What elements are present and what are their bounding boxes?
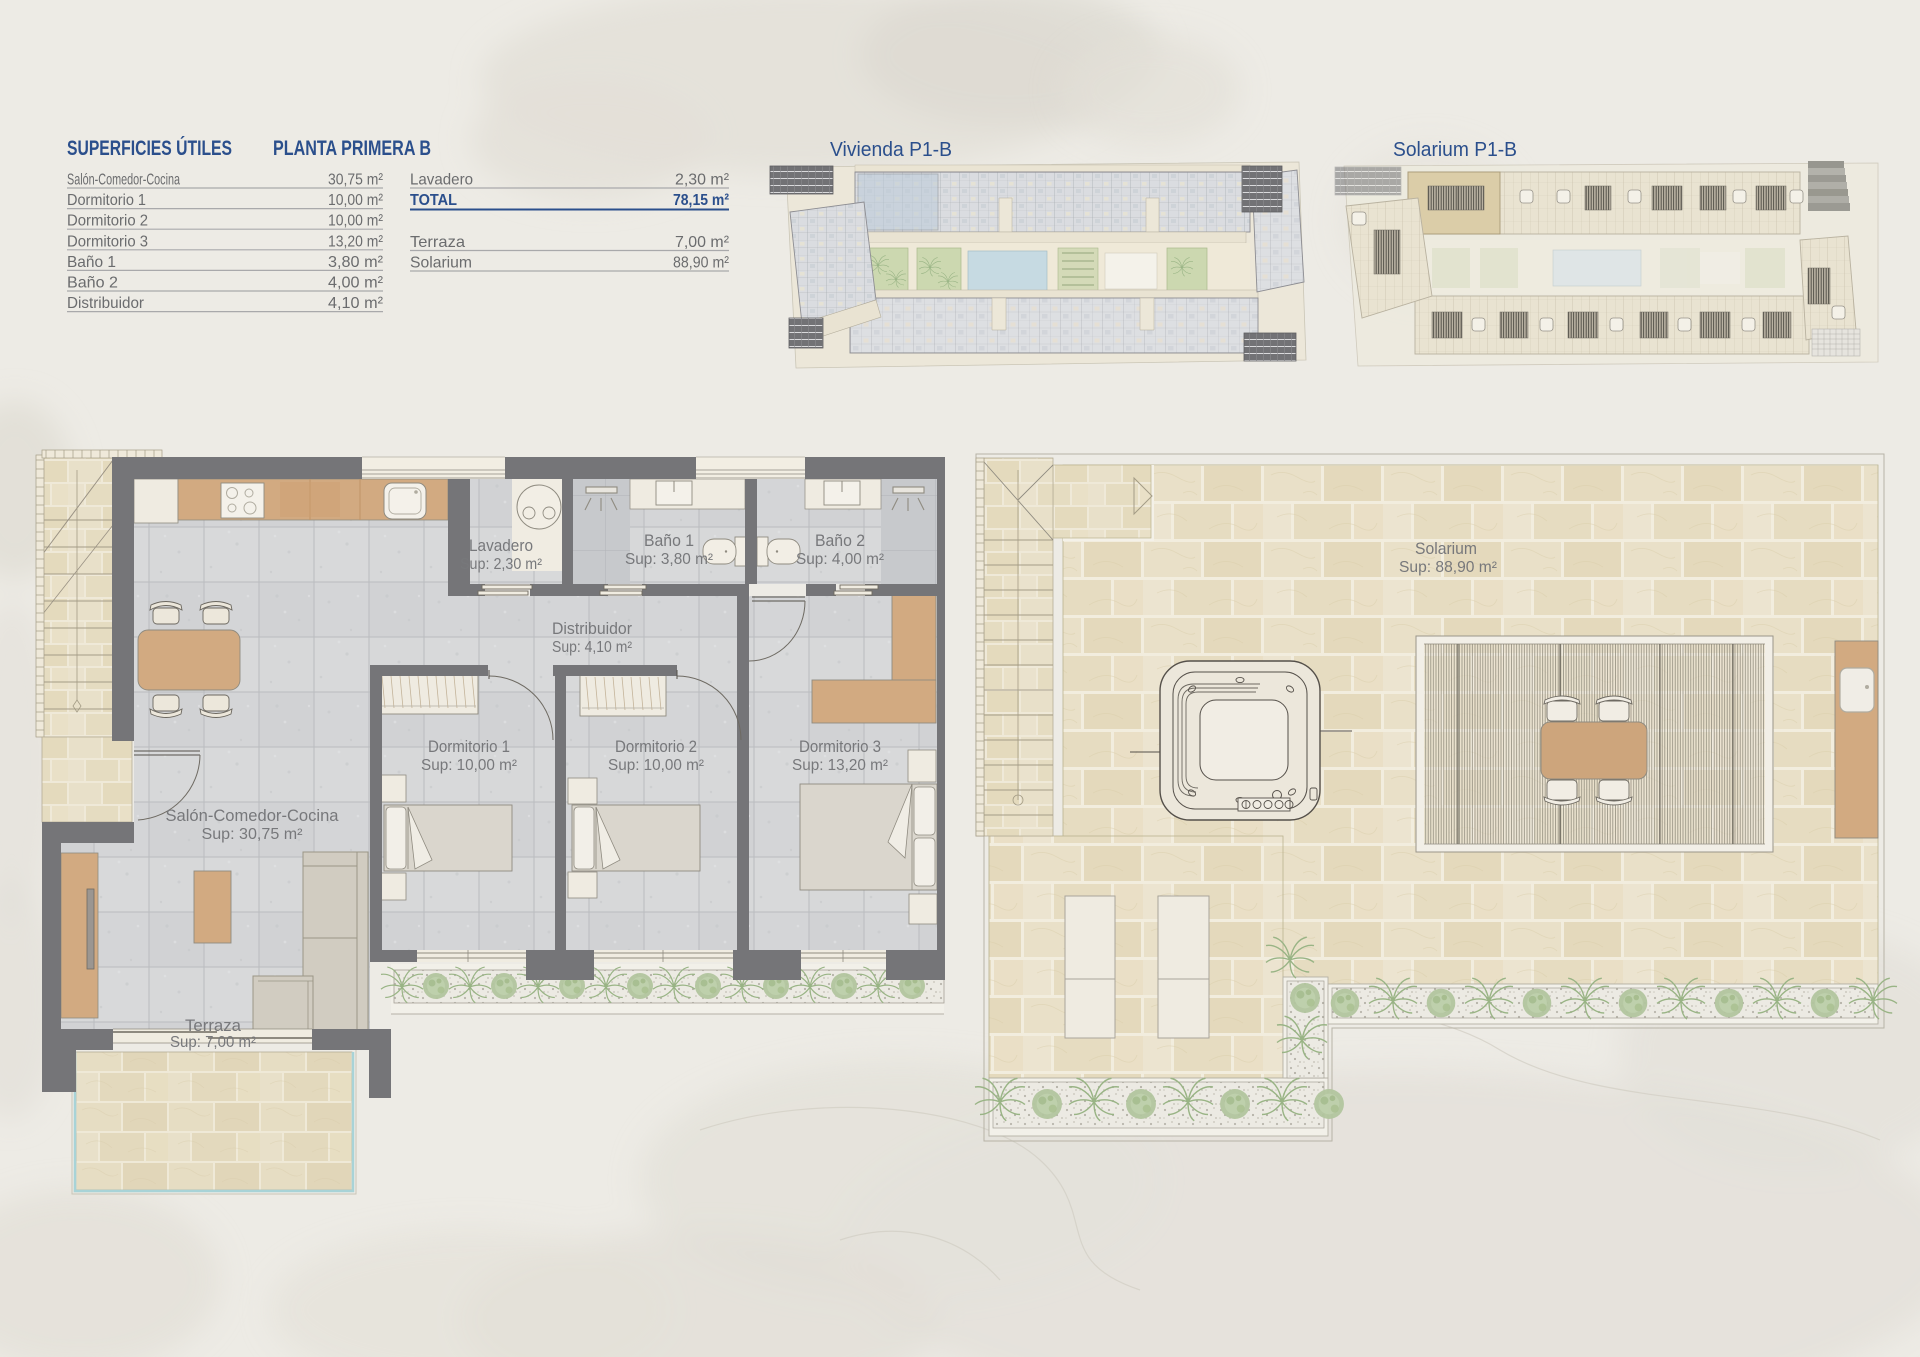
svg-text:10,00 m²: 10,00 m² <box>328 213 384 230</box>
svg-text:Sup: 30,75 m²: Sup: 30,75 m² <box>202 826 303 843</box>
svg-text:Lavadero: Lavadero <box>469 537 533 555</box>
svg-text:Baño 1: Baño 1 <box>67 254 116 271</box>
svg-text:Sup: 13,20 m²: Sup: 13,20 m² <box>792 757 888 774</box>
svg-text:Dormitorio 3: Dormitorio 3 <box>799 738 881 756</box>
svg-text:10,00 m²: 10,00 m² <box>328 192 384 209</box>
svg-text:Dormitorio 3: Dormitorio 3 <box>67 233 148 250</box>
svg-text:Terraza: Terraza <box>185 1017 242 1035</box>
svg-text:7,00 m²: 7,00 m² <box>675 234 730 251</box>
svg-text:Sup: 10,00 m²: Sup: 10,00 m² <box>608 757 704 774</box>
svg-text:78,15 m²: 78,15 m² <box>673 192 729 209</box>
svg-text:Salón-Comedor-Cocina: Salón-Comedor-Cocina <box>67 172 180 189</box>
svg-text:TOTAL: TOTAL <box>410 192 457 209</box>
svg-text:Baño 2: Baño 2 <box>67 275 118 292</box>
svg-text:4,00 m²: 4,00 m² <box>328 275 384 292</box>
svg-text:Dormitorio 2: Dormitorio 2 <box>615 738 697 756</box>
svg-text:88,90 m²: 88,90 m² <box>673 255 730 272</box>
svg-text:Dormitorio 2: Dormitorio 2 <box>67 213 148 230</box>
svg-text:Solarium: Solarium <box>1415 540 1477 558</box>
svg-text:30,75 m²: 30,75 m² <box>328 172 384 189</box>
svg-text:Distribuidor: Distribuidor <box>552 620 632 638</box>
svg-text:Sup: 7,00 m²: Sup: 7,00 m² <box>170 1034 256 1051</box>
svg-text:Lavadero: Lavadero <box>410 172 473 189</box>
svg-text:Sup: 4,00 m²: Sup: 4,00 m² <box>796 551 884 568</box>
svg-text:SUPERFICIES ÚTILES: SUPERFICIES ÚTILES <box>67 136 232 160</box>
svg-text:PLANTA PRIMERA B: PLANTA PRIMERA B <box>273 137 431 160</box>
svg-text:Distribuidor: Distribuidor <box>67 295 145 312</box>
svg-text:2,30 m²: 2,30 m² <box>675 172 730 189</box>
svg-text:Terraza: Terraza <box>410 234 465 251</box>
svg-text:Solarium P1-B: Solarium P1-B <box>1393 139 1517 161</box>
svg-text:3,80 m²: 3,80 m² <box>328 254 384 271</box>
svg-text:Sup: 3,80 m²: Sup: 3,80 m² <box>625 551 713 568</box>
svg-text:Baño 2: Baño 2 <box>815 532 865 550</box>
svg-text:Salón-Comedor-Cocina: Salón-Comedor-Cocina <box>166 807 340 825</box>
svg-text:13,20 m²: 13,20 m² <box>328 233 384 250</box>
svg-text:Sup: 10,00 m²: Sup: 10,00 m² <box>421 757 517 774</box>
svg-text:Sup: 4,10 m²: Sup: 4,10 m² <box>552 639 632 656</box>
svg-text:Dormitorio 1: Dormitorio 1 <box>67 192 146 209</box>
svg-text:Baño 1: Baño 1 <box>644 532 694 550</box>
svg-text:Sup: 88,90 m²: Sup: 88,90 m² <box>1399 559 1497 576</box>
svg-text:4,10 m²: 4,10 m² <box>328 295 384 312</box>
svg-text:Dormitorio 1: Dormitorio 1 <box>428 738 510 756</box>
svg-text:Solarium: Solarium <box>410 255 472 272</box>
svg-text:Sup: 2,30 m²: Sup: 2,30 m² <box>460 556 542 573</box>
svg-text:Vivienda P1-B: Vivienda P1-B <box>830 139 952 161</box>
